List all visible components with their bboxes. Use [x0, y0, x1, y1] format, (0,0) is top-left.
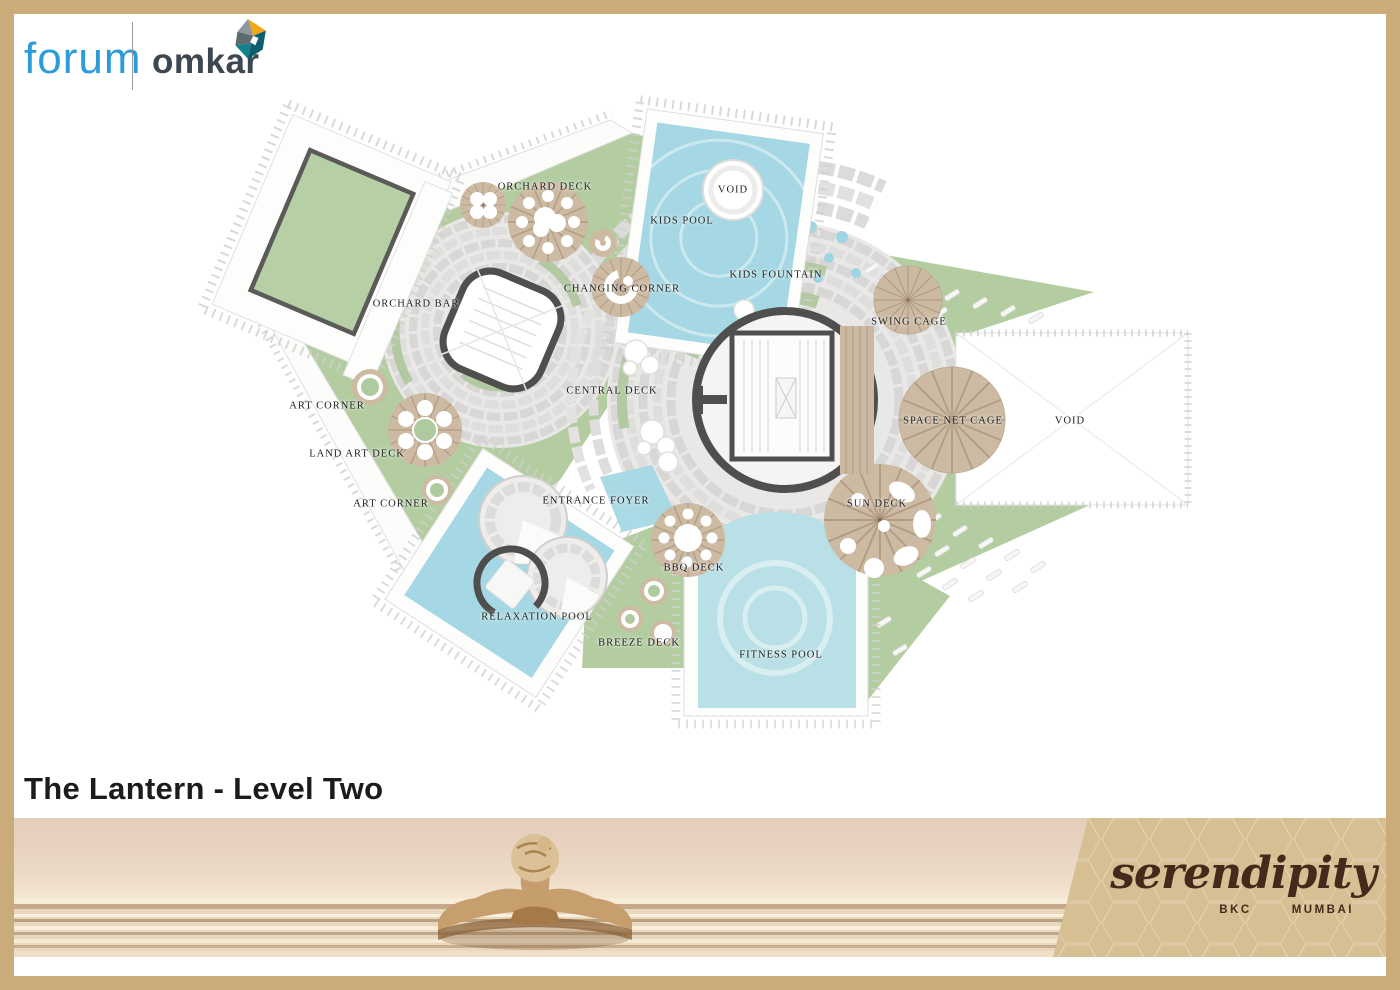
label-swing-cage: SWING CAGE — [871, 317, 947, 328]
page-title: The Lantern - Level Two — [24, 771, 383, 807]
omkar-gem-icon — [228, 18, 268, 60]
logo-divider — [132, 22, 133, 90]
woman-in-pool — [438, 834, 632, 950]
label-art-corner-1: ART CORNER — [289, 401, 364, 412]
location-bkc: BKC — [1219, 904, 1251, 916]
label-breeze-deck: BREEZE DECK — [598, 638, 680, 649]
serendipity-logo: serendipity — [1110, 848, 1376, 899]
label-orchard-bar: ORCHARD BAR — [373, 299, 460, 310]
serendipity-location: BKC MUMBAI — [1219, 904, 1354, 916]
label-kids-fountain: KIDS FOUNTAIN — [730, 270, 823, 281]
label-orchard-deck: ORCHARD DECK — [498, 182, 593, 193]
brand-panel: serendipity BKC MUMBAI — [1053, 818, 1386, 957]
label-relaxation-pool: RELAXATION POOL — [481, 612, 593, 623]
label-sun-deck: SUN DECK — [847, 499, 907, 510]
label-kids-pool: KIDS POOL — [650, 216, 714, 227]
label-void-terrace: VOID — [1055, 416, 1085, 427]
label-changing-corner: CHANGING CORNER — [564, 284, 680, 295]
label-land-art-deck: LAND ART DECK — [309, 449, 405, 460]
label-fitness-pool: FITNESS POOL — [739, 650, 822, 661]
label-space-net-cage: SPACE NET CAGE — [903, 416, 1003, 427]
presentation-slide: ORCHARD DECK KIDS POOL VOID KIDS FOUNTAI… — [0, 0, 1400, 990]
location-mumbai: MUMBAI — [1292, 904, 1354, 916]
label-central-deck: CENTRAL DECK — [566, 386, 657, 397]
central-core — [694, 311, 874, 489]
label-void-pool: VOID — [718, 185, 748, 196]
label-art-corner-2: ART CORNER — [353, 499, 428, 510]
forum-logo: forum — [24, 34, 141, 84]
label-bbq-deck: BBQ DECK — [664, 563, 725, 574]
label-entrance-foyer: ENTRANCE FOYER — [542, 496, 649, 507]
footer-banner: serendipity BKC MUMBAI — [14, 818, 1386, 957]
